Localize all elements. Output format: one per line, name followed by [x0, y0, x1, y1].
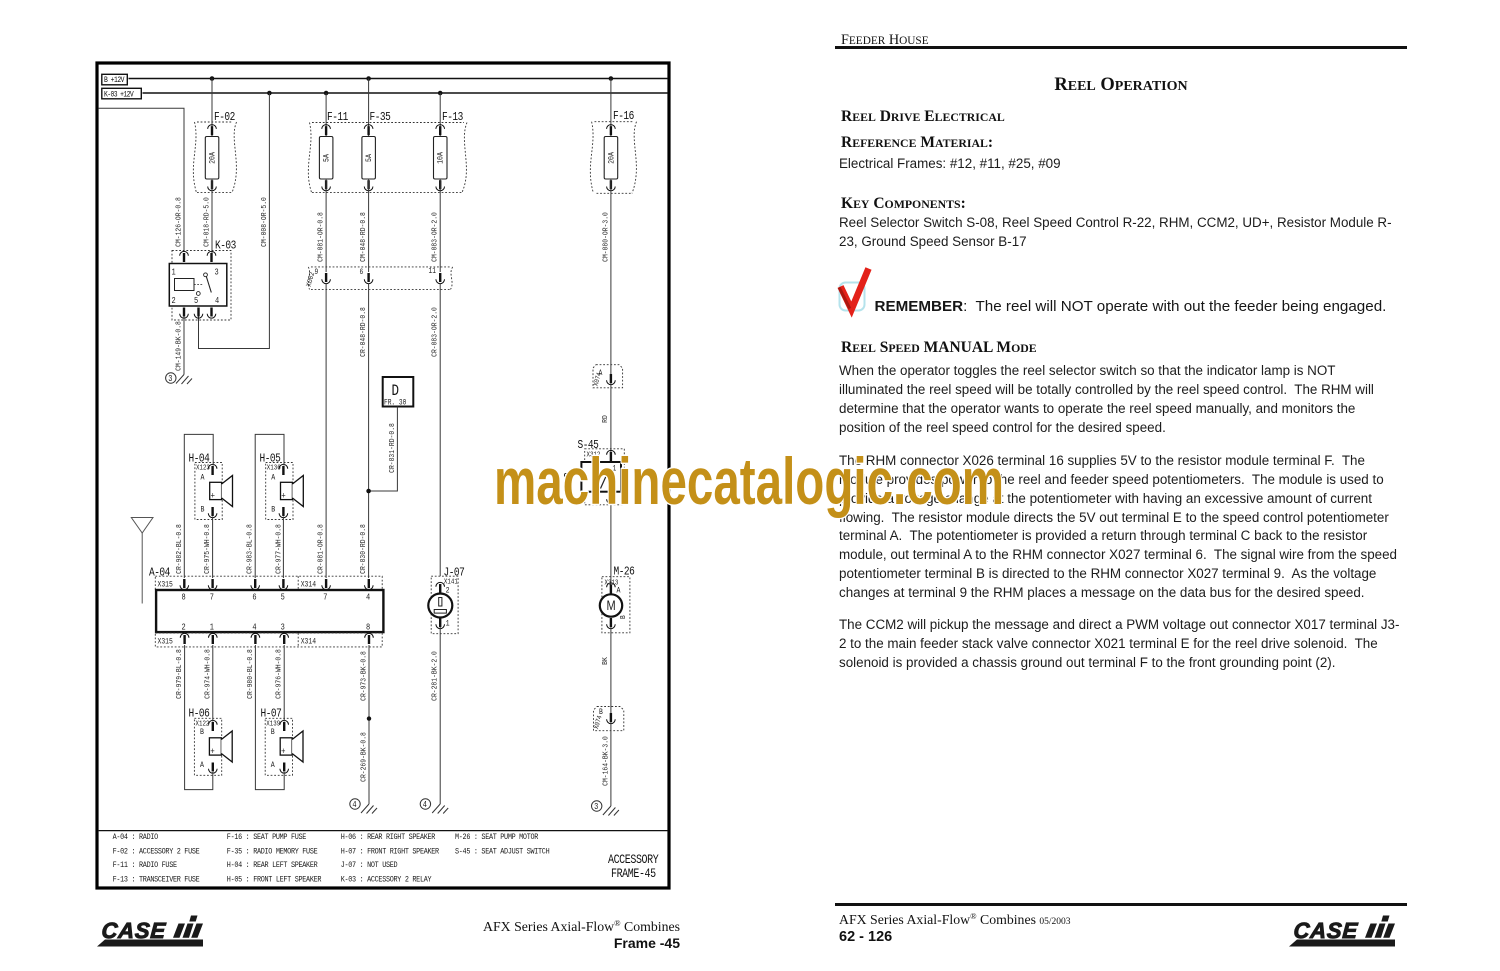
- svg-text:CM-126-OR-0.8: CM-126-OR-0.8: [175, 197, 184, 247]
- svg-text:F-35: F-35: [370, 111, 391, 124]
- svg-text:CM-018-RD-5.0: CM-018-RD-5.0: [203, 197, 212, 247]
- svg-text:F-02: F-02: [214, 111, 235, 124]
- svg-text:20A: 20A: [608, 152, 617, 164]
- svg-text:1: 1: [446, 620, 450, 629]
- svg-text:4: 4: [252, 623, 256, 633]
- svg-text:CR-269-BK-0.8: CR-269-BK-0.8: [360, 732, 369, 782]
- svg-text:2: 2: [172, 296, 176, 306]
- svg-text:10A: 10A: [437, 152, 446, 164]
- svg-text:CR-974-WH-0.8: CR-974-WH-0.8: [204, 649, 213, 699]
- svg-text:8: 8: [366, 623, 370, 633]
- svg-text:CR-976-WH-0.8: CR-976-WH-0.8: [275, 649, 284, 699]
- svg-text:5A: 5A: [366, 153, 375, 161]
- svg-text:RD: RD: [601, 415, 610, 423]
- svg-text:B: B: [200, 728, 204, 737]
- svg-text:B: B: [620, 615, 629, 619]
- svg-text:H-05 : FRONT LEFT SPEAKER: H-05 : FRONT LEFT SPEAKER: [227, 875, 322, 885]
- svg-text:CM-083-OR-2.0: CM-083-OR-2.0: [431, 212, 440, 262]
- svg-text:1: 1: [172, 268, 176, 278]
- svg-text:CR-980-BL-0.8: CR-980-BL-0.8: [246, 649, 255, 699]
- svg-text:F-35 : RADIO MEMORY FUSE: F-35 : RADIO MEMORY FUSE: [227, 847, 318, 857]
- svg-text:X122: X122: [196, 719, 210, 728]
- svg-text:B: B: [201, 506, 205, 515]
- svg-text:D: D: [392, 383, 399, 401]
- svg-text:M: M: [607, 598, 616, 614]
- svg-text:CR-973-BK-0.8: CR-973-BK-0.8: [360, 651, 369, 701]
- svg-text:3: 3: [215, 268, 219, 278]
- svg-text:CR-979-BL-0.8: CR-979-BL-0.8: [176, 649, 185, 699]
- svg-text:X314: X314: [301, 638, 317, 647]
- svg-text:CR-830-RD-0.8: CR-830-RD-0.8: [360, 524, 369, 574]
- svg-text:A: A: [201, 474, 205, 483]
- svg-text:X074: X074: [592, 372, 603, 388]
- svg-text:20A: 20A: [209, 152, 218, 164]
- svg-text:A-04: A-04: [149, 567, 170, 580]
- svg-text:B +12V: B +12V: [104, 76, 125, 85]
- svg-text:7: 7: [323, 593, 327, 603]
- svg-text:J-07 : NOT USED: J-07 : NOT USED: [341, 860, 398, 870]
- svg-text:A: A: [617, 587, 621, 596]
- svg-text:A: A: [271, 761, 275, 770]
- svg-text:A: A: [200, 761, 204, 770]
- svg-text:4: 4: [423, 800, 427, 810]
- svg-text:S-45 : SEAT ADJUST SWITCH: S-45 : SEAT ADJUST SWITCH: [455, 847, 550, 857]
- svg-text:9: 9: [315, 268, 319, 277]
- svg-text:+: +: [210, 746, 215, 757]
- svg-text:2: 2: [182, 623, 186, 633]
- svg-text:5: 5: [194, 296, 198, 306]
- svg-text:CASE: CASE: [101, 918, 168, 943]
- svg-text:A: A: [271, 474, 275, 483]
- svg-text:CM-164-BK-3.0: CM-164-BK-3.0: [602, 736, 611, 786]
- svg-text:F-02 : ACCESSORY 2 FUSE: F-02 : ACCESSORY 2 FUSE: [113, 847, 200, 857]
- svg-text:machinecatalogic.com: machinecatalogic.com: [494, 448, 1004, 518]
- svg-text:CM-048-RD-0.8: CM-048-RD-0.8: [360, 212, 369, 262]
- svg-text:7: 7: [210, 593, 214, 603]
- svg-text:F-16 : SEAT PUMP FUSE: F-16 : SEAT PUMP FUSE: [227, 832, 307, 842]
- svg-text:M-26 : SEAT PUMP MOTOR: M-26 : SEAT PUMP MOTOR: [455, 832, 539, 842]
- svg-text:F-13 : TRANSCEIVER FUSE: F-13 : TRANSCEIVER FUSE: [113, 875, 200, 885]
- svg-text:X141: X141: [444, 577, 458, 586]
- svg-text:CR-983-BL-0.8: CR-983-BL-0.8: [246, 524, 255, 574]
- svg-text:CM-081-OR-0.8: CM-081-OR-0.8: [317, 212, 326, 262]
- svg-text:K-03 +12V: K-03 +12V: [104, 91, 134, 100]
- svg-text:8: 8: [182, 593, 186, 603]
- svg-text:K-03 : ACCESSORY 2 RELAY: K-03 : ACCESSORY 2 RELAY: [341, 875, 432, 885]
- svg-text:6: 6: [252, 593, 256, 603]
- svg-text:CM-008-OR-5.0: CM-008-OR-5.0: [261, 197, 270, 247]
- svg-text:3: 3: [168, 374, 172, 384]
- svg-text:+: +: [281, 491, 286, 502]
- svg-text:X136: X136: [267, 463, 281, 472]
- svg-text:3: 3: [281, 623, 285, 633]
- svg-text:4: 4: [366, 593, 370, 603]
- svg-text:CR-081-OR-0.8: CR-081-OR-0.8: [317, 524, 326, 574]
- svg-text:X315: X315: [158, 581, 173, 590]
- svg-text:BK: BK: [601, 656, 610, 664]
- svg-text:FRAME-45: FRAME-45: [611, 867, 656, 881]
- svg-text:H-06 : REAR RIGHT SPEAKER: H-06 : REAR RIGHT SPEAKER: [341, 832, 436, 842]
- svg-text:+: +: [211, 491, 216, 502]
- svg-text:+: +: [281, 746, 286, 757]
- svg-text:B: B: [271, 728, 275, 737]
- svg-text:1: 1: [210, 623, 214, 633]
- svg-text:CR-048-RD-0.8: CR-048-RD-0.8: [360, 307, 369, 357]
- svg-text:CR-083-OR-2.0: CR-083-OR-2.0: [431, 307, 440, 357]
- svg-text:X123: X123: [196, 463, 210, 472]
- svg-text:X139: X139: [266, 719, 280, 728]
- svg-text:5A: 5A: [323, 153, 332, 161]
- svg-text:CR-977-WH-0.8: CR-977-WH-0.8: [275, 524, 284, 574]
- svg-text:H-04 : REAR LEFT SPEAKER: H-04 : REAR LEFT SPEAKER: [227, 860, 318, 870]
- svg-text:CM-080-OR-3.0: CM-080-OR-3.0: [602, 212, 611, 262]
- svg-text:FR. 30: FR. 30: [384, 399, 406, 408]
- svg-text:CR-281-BK-2.0: CR-281-BK-2.0: [431, 651, 440, 701]
- svg-text:4: 4: [352, 800, 356, 810]
- svg-text:K-03: K-03: [215, 240, 236, 253]
- svg-text:CR-831-RD-0.8: CR-831-RD-0.8: [388, 423, 397, 473]
- svg-text:CR-975-WH-0.8: CR-975-WH-0.8: [204, 524, 213, 574]
- svg-text:11: 11: [429, 267, 436, 276]
- svg-text:3: 3: [594, 802, 598, 812]
- svg-text:CASE: CASE: [1293, 918, 1360, 943]
- svg-text:CM-149-BK-0.8: CM-149-BK-0.8: [175, 321, 184, 371]
- svg-text:H-07 : FRONT RIGHT SPEAKER: H-07 : FRONT RIGHT SPEAKER: [341, 847, 440, 857]
- svg-text:F-11 : RADIO FUSE: F-11 : RADIO FUSE: [113, 860, 178, 870]
- svg-text:4: 4: [215, 296, 219, 306]
- svg-text:5: 5: [281, 593, 285, 603]
- svg-text:X074: X074: [593, 715, 604, 731]
- svg-text:A-04 : RADIO: A-04 : RADIO: [113, 832, 159, 842]
- svg-text:CR-982-BL-0.8: CR-982-BL-0.8: [175, 524, 184, 574]
- svg-text:ACCESSORY: ACCESSORY: [608, 853, 659, 867]
- svg-text:X315: X315: [158, 638, 173, 647]
- svg-text:X314: X314: [301, 581, 317, 590]
- svg-text:B: B: [271, 506, 275, 515]
- svg-text:6: 6: [360, 268, 364, 277]
